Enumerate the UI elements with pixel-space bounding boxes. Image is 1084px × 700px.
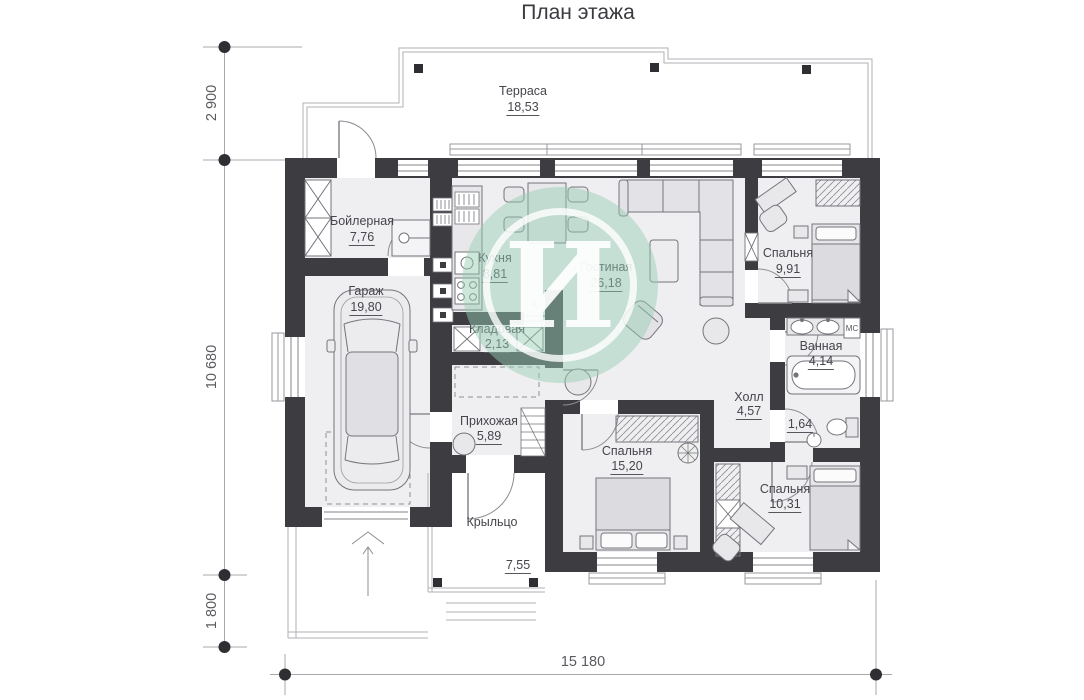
pouf-icon (453, 433, 475, 455)
room-label-porch-name: Крыльцо (467, 515, 518, 529)
plant-icon (678, 443, 698, 463)
window-garage-icon (272, 333, 305, 401)
room-label-hall-name: Холл (734, 390, 763, 404)
vent-shaft-icon (745, 233, 758, 261)
bed-icon (810, 466, 860, 550)
room-label-bedroom2-area: 15,20 (610, 459, 643, 475)
window-bathroom-icon (860, 329, 893, 401)
dimension-left-bottom: 1 800 (205, 593, 219, 629)
pouf-icon (565, 369, 591, 395)
terrace-door-icon (339, 121, 376, 158)
nightstand-icon (580, 536, 593, 549)
room-label-living-area: 26,18 (589, 276, 622, 292)
window-top-small-icon (398, 160, 428, 176)
floor-plan-drawing (0, 0, 1084, 700)
room-label-bathroom-area: 4,14 (808, 354, 834, 370)
terrace-post-icon (650, 63, 659, 72)
room-label-bedroom1-name: Спальня (763, 246, 813, 260)
terrace-outline (303, 48, 872, 158)
pouf-icon (703, 318, 729, 344)
room-label-bedroom3-area: 10,31 (768, 497, 801, 513)
furniture-kitchen (452, 186, 482, 310)
room-label-kitchen-area: 8,81 (482, 267, 508, 283)
garage-gate-icon (322, 507, 410, 527)
porch-post-icon (433, 578, 442, 587)
window-living2-icon (642, 144, 741, 176)
shelving-icon (305, 180, 331, 256)
room-label-porch-area: 7,55 (505, 558, 531, 574)
page-title: План этажа (521, 6, 635, 20)
room-label-garage-name: Гараж (348, 284, 383, 298)
floor-plan-page: План этажа Терраса 18,53 Бойлерная 7,76 … (0, 0, 1084, 700)
room-label-entry-area: 5,89 (476, 429, 502, 445)
bench-icon (788, 290, 808, 302)
wardrobe-icon (616, 416, 698, 442)
room-label-pantry-area: 2,13 (484, 337, 510, 353)
room-label-kitchen-name: Кухня (478, 251, 511, 265)
porch-post-icon (529, 578, 538, 587)
sink-icon (817, 320, 839, 334)
room-label-bedroom2-name: Спальня (602, 444, 652, 458)
room-label-wc-area: 1,64 (787, 417, 813, 433)
terrace-post-icon (414, 64, 423, 73)
car-icon (327, 290, 417, 490)
dimension-left-middle: 10 680 (205, 345, 219, 389)
room-label-boiler-name: Бойлерная (330, 214, 394, 228)
dimension-bottom: 15 180 (561, 655, 605, 669)
room-label-bedroom3-name: Спальня (760, 482, 810, 496)
room-label-terrace-area: 18,53 (506, 100, 539, 116)
nightstand-icon (787, 466, 807, 479)
shoe-cabinet-icon (521, 408, 545, 456)
bed-icon (596, 478, 670, 550)
toilet-icon (827, 418, 858, 437)
room-label-bathroom-name: Ванная (800, 339, 843, 353)
wardrobe-icon (816, 180, 860, 206)
window-kitchen-icon (450, 144, 548, 176)
sink-icon (455, 252, 479, 274)
room-label-entry-name: Прихожая (460, 414, 518, 428)
room-label-terrace-name: Терраса (499, 84, 547, 98)
washer-label: МС (846, 322, 858, 336)
nightstand-icon (794, 226, 808, 238)
room-label-pantry-name: Кладовая (469, 322, 525, 336)
room-label-garage-area: 19,80 (349, 300, 382, 316)
bed-icon (812, 224, 860, 303)
window-bedroom1-icon (754, 144, 850, 176)
nightstand-icon (674, 536, 687, 549)
front-door-icon (468, 473, 514, 519)
door-mark-label: x (532, 297, 537, 311)
room-label-living-name: Гостиная (580, 260, 632, 274)
terrace-post-icon (802, 65, 811, 74)
dimension-left-top: 2 900 (205, 85, 219, 121)
window-living1-icon (547, 144, 645, 176)
small-sink-icon (807, 433, 821, 447)
stove-icon (455, 278, 479, 304)
room-label-hall-area: 4,57 (736, 404, 762, 420)
window-bedroom3-icon (745, 552, 821, 584)
room-label-bedroom1-area: 9,91 (775, 262, 801, 278)
boiler-icon (392, 220, 430, 256)
room-label-boiler-area: 7,76 (349, 230, 375, 246)
window-bedroom2-icon (589, 552, 665, 584)
coffee-table-icon (650, 240, 678, 282)
sink-icon (791, 320, 813, 334)
